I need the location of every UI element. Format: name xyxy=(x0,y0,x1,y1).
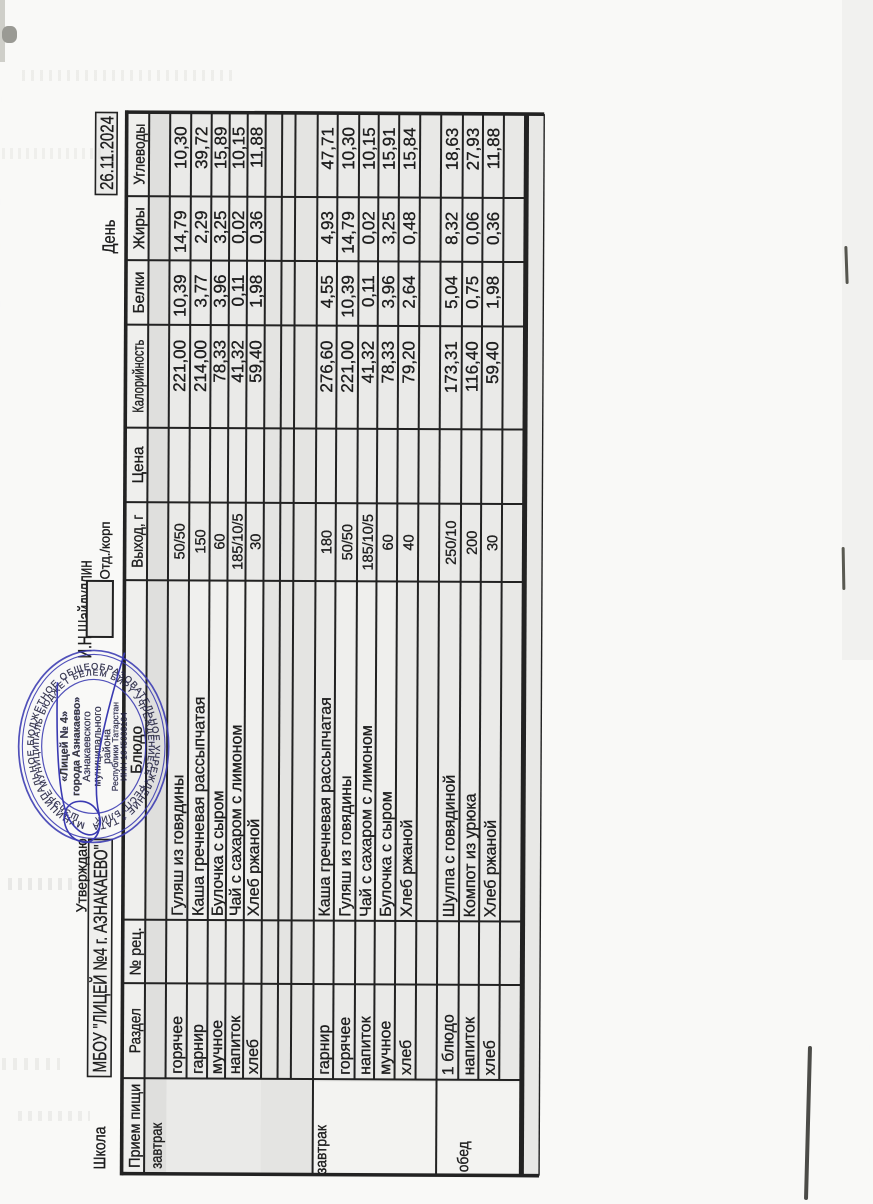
svg-text:40: 40 xyxy=(401,534,417,550)
svg-text:Шулпа с говядиной: Шулпа с говядиной xyxy=(441,775,459,918)
svg-text:Чай с сахаром с лимоном: Чай с сахаром с лимоном xyxy=(358,725,376,917)
svg-text:15,84: 15,84 xyxy=(400,127,419,170)
svg-text:79,20: 79,20 xyxy=(399,341,418,384)
svg-text:Булочка с сыром: Булочка с сыром xyxy=(378,791,396,917)
svg-text:напиток: напиток xyxy=(227,1015,244,1074)
svg-text:30: 30 xyxy=(485,535,501,551)
svg-text:0,75: 0,75 xyxy=(463,276,482,309)
svg-text:№ рец.: № рец. xyxy=(128,927,145,975)
svg-text:«Лицей № 4»: «Лицей № 4» xyxy=(58,711,70,782)
svg-text:185/10/5: 185/10/5 xyxy=(361,514,377,571)
svg-text:горячее: горячее xyxy=(169,1016,186,1074)
svg-text:2,29: 2,29 xyxy=(192,210,211,243)
svg-text:3,25: 3,25 xyxy=(211,211,230,244)
svg-text:50/50: 50/50 xyxy=(340,524,356,560)
svg-text:Чай с сахаром с лимоном: Чай с сахаром с лимоном xyxy=(228,725,246,917)
svg-text:мучное: мучное xyxy=(209,1020,226,1074)
svg-text:14,79: 14,79 xyxy=(339,211,358,254)
svg-text:завтрак: завтрак xyxy=(149,1123,166,1169)
svg-text:14,79: 14,79 xyxy=(171,210,190,253)
svg-text:Раздел: Раздел xyxy=(127,1008,144,1053)
svg-text:11,88: 11,88 xyxy=(247,127,266,168)
svg-text:4,93: 4,93 xyxy=(318,211,337,244)
svg-text:гарнир: гарнир xyxy=(316,1024,333,1074)
svg-text:Прием пищи: Прием пищи xyxy=(127,1084,144,1168)
svg-text:10,30: 10,30 xyxy=(171,126,190,169)
svg-text:1 блюдо: 1 блюдо xyxy=(440,1014,457,1075)
svg-text:3,96: 3,96 xyxy=(211,275,230,308)
svg-text:Отд./корп: Отд./корп xyxy=(97,521,112,579)
svg-text:Утверждаю: Утверждаю xyxy=(74,838,90,912)
svg-text:4,55: 4,55 xyxy=(318,275,337,308)
svg-text:1,98: 1,98 xyxy=(483,276,502,309)
svg-text:78,33: 78,33 xyxy=(379,341,398,384)
svg-text:78,33: 78,33 xyxy=(210,340,229,383)
svg-text:221,00: 221,00 xyxy=(338,341,357,393)
svg-text:41,32: 41,32 xyxy=(359,341,378,384)
svg-text:День: День xyxy=(99,219,119,253)
svg-text:завтрак: завтрак xyxy=(313,1125,330,1174)
svg-text:Школа: Школа xyxy=(91,1126,109,1170)
svg-text:горячее: горячее xyxy=(337,1017,354,1075)
svg-text:Хлеб ржаной: Хлеб ржаной xyxy=(399,819,416,917)
svg-text:Хлеб ржаной: Хлеб ржаной xyxy=(246,819,263,917)
svg-text:Гуляш из говядины: Гуляш из говядины xyxy=(170,775,188,916)
svg-text:150: 150 xyxy=(193,529,209,553)
svg-text:Компот из урюка: Компот из урюка xyxy=(462,793,480,917)
svg-text:Каша гречневая рассыпчатая: Каша гречневая рассыпчатая xyxy=(317,697,335,917)
svg-text:18,63: 18,63 xyxy=(443,128,462,171)
svg-text:221,00: 221,00 xyxy=(170,340,189,392)
svg-text:0,36: 0,36 xyxy=(247,211,266,244)
svg-text:39,72: 39,72 xyxy=(192,126,211,169)
svg-text:185/10/5: 185/10/5 xyxy=(230,513,246,570)
svg-text:ИНН 1645009164: ИНН 1645009164 xyxy=(118,712,128,781)
svg-text:214,00: 214,00 xyxy=(191,340,210,392)
svg-text:Булочка с сыром: Булочка с сыром xyxy=(210,790,228,916)
svg-text:173,31: 173,31 xyxy=(442,341,461,393)
svg-text:напиток: напиток xyxy=(357,1015,374,1074)
svg-text:3,25: 3,25 xyxy=(379,211,398,244)
svg-text:гарнир: гарнир xyxy=(190,1024,207,1074)
svg-text:0,02: 0,02 xyxy=(359,211,378,244)
svg-text:2,64: 2,64 xyxy=(400,275,419,308)
svg-text:15,89: 15,89 xyxy=(211,127,230,170)
svg-text:11,88: 11,88 xyxy=(484,128,503,169)
svg-text:обед: обед xyxy=(455,1141,472,1172)
svg-text:15,91: 15,91 xyxy=(380,127,399,170)
svg-text:41,32: 41,32 xyxy=(228,340,247,383)
svg-text:хлеб: хлеб xyxy=(245,1039,262,1074)
svg-text:0,11: 0,11 xyxy=(359,275,378,307)
svg-text:Гуляш из говядины: Гуляш из говядины xyxy=(337,775,355,916)
svg-text:60: 60 xyxy=(381,534,397,550)
svg-text:10,15: 10,15 xyxy=(360,127,379,170)
svg-text:10,30: 10,30 xyxy=(339,127,358,170)
svg-text:0,48: 0,48 xyxy=(400,211,419,244)
svg-text:Хлеб ржаной: Хлеб ржаной xyxy=(482,820,499,918)
svg-text:180: 180 xyxy=(319,530,335,554)
svg-text:8,32: 8,32 xyxy=(442,212,461,245)
svg-text:0,06: 0,06 xyxy=(463,212,482,245)
svg-text:47,71: 47,71 xyxy=(318,127,337,170)
svg-text:50/50: 50/50 xyxy=(172,523,188,559)
svg-text:10,15: 10,15 xyxy=(229,127,248,170)
svg-text:Каша гречневая рассыпчатая: Каша гречневая рассыпчатая xyxy=(190,696,208,916)
svg-text:3,77: 3,77 xyxy=(191,274,210,307)
svg-text:10,39: 10,39 xyxy=(338,275,357,318)
svg-text:5,04: 5,04 xyxy=(442,276,461,309)
svg-text:мучное: мучное xyxy=(377,1021,394,1075)
svg-text:59,40: 59,40 xyxy=(246,340,265,383)
svg-text:0,36: 0,36 xyxy=(484,212,503,245)
svg-text:59,40: 59,40 xyxy=(483,341,502,384)
svg-text:30: 30 xyxy=(248,534,264,550)
svg-text:200: 200 xyxy=(465,531,481,555)
svg-text:Цена: Цена xyxy=(130,446,147,483)
svg-text:Жиры: Жиры xyxy=(131,207,148,249)
svg-text:хлеб: хлеб xyxy=(482,1040,499,1075)
svg-text:0,11: 0,11 xyxy=(229,275,248,307)
svg-text:60: 60 xyxy=(212,533,228,549)
svg-text:1,98: 1,98 xyxy=(247,275,266,308)
svg-text:250/10: 250/10 xyxy=(444,520,460,564)
svg-text:116,40: 116,40 xyxy=(462,341,481,392)
svg-text:МБОУ "ЛИЦЕЙ №4 г. АЗНАКАЕВО": МБОУ "ЛИЦЕЙ №4 г. АЗНАКАЕВО" xyxy=(89,844,112,1072)
svg-text:27,93: 27,93 xyxy=(464,128,483,171)
svg-text:3,96: 3,96 xyxy=(379,275,398,308)
svg-text:0,02: 0,02 xyxy=(229,211,248,244)
svg-text:276,60: 276,60 xyxy=(317,341,336,393)
svg-text:10,39: 10,39 xyxy=(171,274,190,317)
svg-text:Углеводы: Углеводы xyxy=(131,124,148,185)
svg-text:Калорийность: Калорийность xyxy=(130,340,147,413)
svg-text:хлеб: хлеб xyxy=(398,1040,415,1075)
svg-text:Выход, г: Выход, г xyxy=(130,514,147,567)
svg-text:напиток: напиток xyxy=(461,1016,478,1075)
svg-text:Белки: Белки xyxy=(131,271,148,313)
